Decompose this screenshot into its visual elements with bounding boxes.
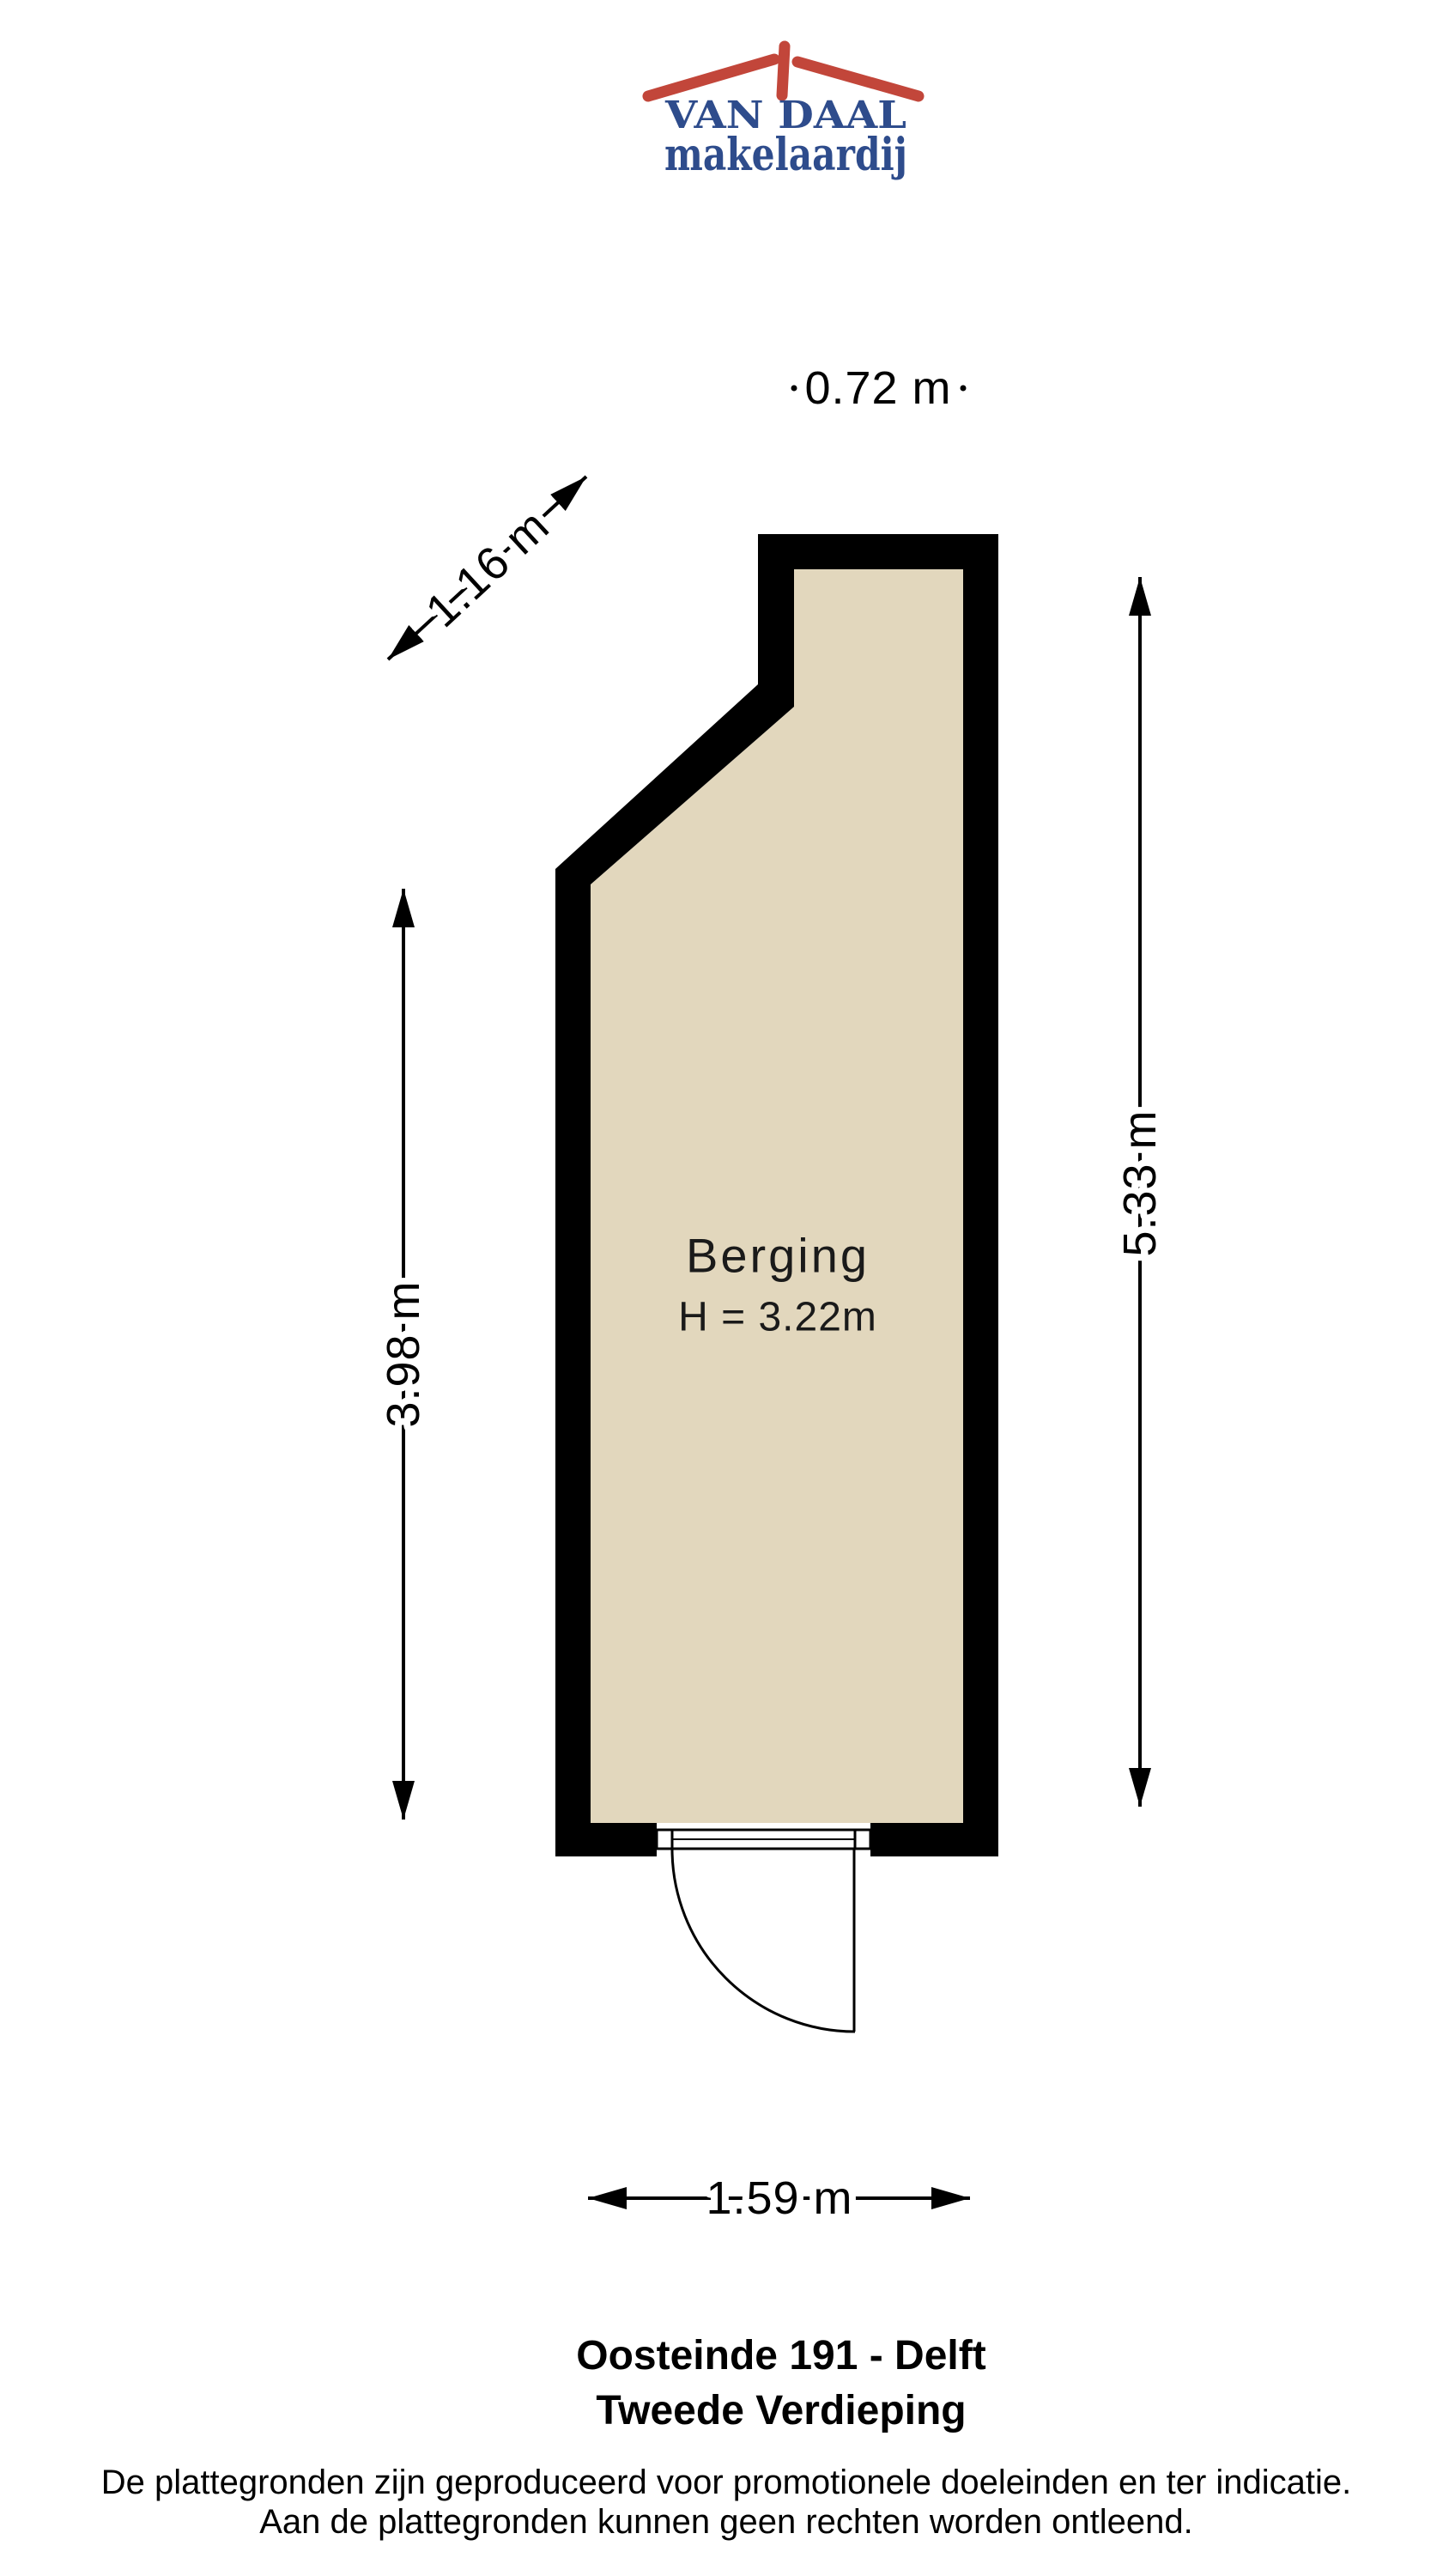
logo: VAN DAAL makelaardij [648, 46, 919, 181]
door-jamb-left [657, 1830, 672, 1849]
room-floor [591, 569, 963, 1823]
door-jamb-right [855, 1830, 870, 1849]
logo-tagline: makelaardij [664, 129, 907, 181]
logo-roof-left-line [648, 59, 774, 96]
plan-disclaimer-line2: Aan de plattegronden kunnen geen rechten… [101, 2502, 1352, 2542]
room-name-label: Berging [686, 1229, 870, 1283]
dimension-bottom: 1.59 m [588, 2172, 970, 2224]
dimension-top-label: 0.72 m [804, 362, 951, 414]
logo-chimney-line [782, 46, 785, 95]
dimension-diagonal-label: 1.16 m [416, 500, 559, 637]
dimension-bottom-label: 1.59 m [706, 2172, 852, 2224]
dimension-right-label: 5.33 m [1114, 1109, 1166, 1256]
floorplan-canvas: VAN DAAL makelaardij Berging H = 3.22m 0… [0, 0, 1449, 2576]
dimension-right: 5.33 m [1114, 577, 1166, 1807]
door-swing-arc [672, 1849, 855, 2032]
plan-title: Oosteinde 191 - Delft Tweede Verdieping [576, 2329, 985, 2439]
dimension-top-tick-left [791, 386, 797, 392]
dimension-top-tick-right [961, 386, 967, 392]
room-berging: Berging H = 3.22m [555, 534, 998, 2032]
dimension-left-label: 3.98 m [378, 1280, 429, 1427]
plan-title-floor: Tweede Verdieping [576, 2384, 985, 2439]
logo-roof-right-line [797, 62, 919, 96]
room-height-label: H = 3.22m [678, 1295, 877, 1340]
plan-disclaimer-line1: De plattegronden zijn geproduceerd voor … [101, 2463, 1352, 2502]
dimension-left: 3.98 m [378, 889, 429, 1820]
plan-disclaimer: De plattegronden zijn geproduceerd voor … [101, 2463, 1352, 2542]
plan-title-address: Oosteinde 191 - Delft [576, 2329, 985, 2384]
dimension-diagonal: 1.16 m [388, 477, 586, 659]
dimension-top: 0.72 m [791, 362, 967, 414]
